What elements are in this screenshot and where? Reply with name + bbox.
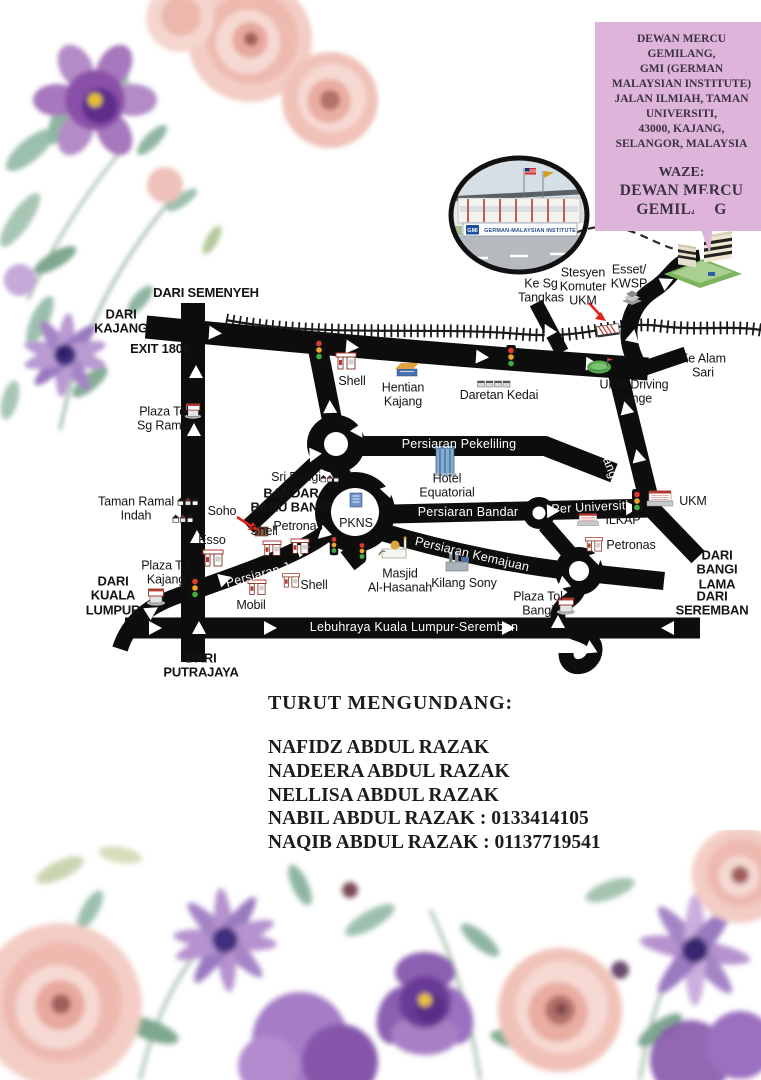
traffic-light-icon <box>330 535 339 555</box>
traffic-light-icon <box>358 541 367 561</box>
label-stesyen-komuter-ukm: Stesyen Komuter UKM <box>560 266 607 307</box>
houses-icon <box>172 515 194 523</box>
invite-name: NAFIDZ ABDUL RAZAK <box>268 736 601 760</box>
invite-heading: TURUT MENGUNDANG: <box>268 692 601 715</box>
gas-station-icon <box>203 550 223 566</box>
pkns-building-icon <box>350 493 362 507</box>
traffic-light-icon <box>632 489 642 513</box>
label-ke-sg-tangkas: Ke Sg Tangkas <box>518 277 564 305</box>
label-ilkap: ILKAP <box>606 514 641 528</box>
houses-icon <box>177 498 199 506</box>
gas-station-icon <box>586 538 603 552</box>
venue-address: DEWAN MERCU GEMILANG, GMI (GERMAN MALAYS… <box>600 32 761 152</box>
label-dari-bangi-lama: DARI BANGI LAMA <box>695 549 739 592</box>
label-ukm: UKM <box>679 495 706 509</box>
invite-name: NELLISA ABDUL RAZAK <box>268 784 601 808</box>
venue-info-box: DEWAN MERCU GEMILANG, GMI (GERMAN MALAYS… <box>595 22 761 231</box>
label-dari-kuala-lumpur: DARI KUALA LUMPUR <box>86 575 140 618</box>
venue-photo: GMI GERMAN-MALAYSIAN INSTITUTE <box>448 155 593 281</box>
traffic-light-icon <box>190 576 200 600</box>
label-dari-seremban: DARI SEREMBAN <box>676 590 749 619</box>
invite-name: NABIL ABDUL RAZAK : 0133414105 <box>268 807 601 831</box>
label-ke-alam-sari: Ke Alam Sari <box>680 352 726 380</box>
waze-label: WAZE: <box>600 165 761 181</box>
label-lebuhraya: Lebuhraya Kuala Lumpur-Seremban <box>310 621 518 635</box>
gmi-logo-text: GMI <box>467 228 478 234</box>
gmi-sign-text: GERMAN-MALAYSIAN INSTITUTE <box>484 228 576 234</box>
label-shell-top: Shell <box>338 375 365 389</box>
label-taman-ramal-indah: Taman Ramal Indah <box>98 495 174 523</box>
invite-section: TURUT MENGUNDANG: NAFIDZ ABDUL RAZAK NAD… <box>268 692 601 855</box>
label-plaza-tol-kajang: Plaza Tol Kajang <box>141 559 191 587</box>
bus-terminal-icon <box>395 363 419 376</box>
label-dari-semenyeh: DARI SEMENYEH <box>153 286 259 300</box>
label-dari-putrajaya: DARI PUTRAJAYA <box>163 652 238 681</box>
label-soho: Soho <box>208 505 237 519</box>
invite-names: NAFIDZ ABDUL RAZAK NADEERA ABDUL RAZAK N… <box>268 736 601 855</box>
label-dari-kajang: DARI KAJANG <box>94 308 148 337</box>
label-petronas-ilkap: Petronas <box>606 539 655 553</box>
label-daretan-kedai: Daretan Kedai <box>460 389 539 403</box>
label-plaza-tol-sg-ramal: Plaza Tol Sg Ramal <box>137 405 191 433</box>
label-kilang-sony: Kilang Sony <box>431 577 497 591</box>
houses-icon <box>320 475 339 482</box>
label-ukm-driving-range: UKM Driving Range <box>599 378 668 406</box>
invite-name: NAQIB ABDUL RAZAK : 01137719541 <box>268 831 601 855</box>
invitation-map-page: GMI GERMAN-MALAYSIAN INSTITUTE DARI SEME… <box>0 0 761 1080</box>
train-station-icon <box>596 324 619 338</box>
gas-station-icon <box>336 353 356 369</box>
label-sri-bangi: Sri Bangi <box>271 471 321 485</box>
label-hotel-equatorial: Hotel Equatorial <box>419 472 474 500</box>
waze-destination: DEWAN MERCU GEMILANG <box>600 181 761 220</box>
label-esso: Esso <box>198 534 225 548</box>
label-petronas-bandar: Petronas <box>273 520 322 534</box>
label-persiaran-bandar: Persiaran Bandar <box>418 506 518 520</box>
label-hentian-kajang: Hentian Kajang <box>382 381 424 409</box>
shops-icon <box>478 381 511 387</box>
label-mobil: Mobil <box>236 599 265 613</box>
label-esset-kwsp: Esset/ KWSP <box>611 263 647 291</box>
label-persiaran-pekeliling: Persiaran Pekeliling <box>402 438 516 452</box>
label-masjid-al-hasanah: Masjid Al-Hasanah <box>368 567 432 595</box>
invite-name: NADEERA ABDUL RAZAK <box>268 760 601 784</box>
traffic-light-icon <box>506 345 516 369</box>
campus-building-icon <box>578 515 599 526</box>
label-pkns: PKNS <box>339 517 373 531</box>
label-plaza-tol-bangi: Plaza Tol Bangi <box>513 590 563 618</box>
traffic-light-icon <box>314 338 324 362</box>
label-shell-jaya: Shell <box>300 579 327 593</box>
label-exit-1806: EXIT 1806 <box>130 342 190 356</box>
label-bandar-baru-bangi: BANDAR BARU BANGI <box>250 487 331 516</box>
campus-building-icon <box>647 492 673 506</box>
